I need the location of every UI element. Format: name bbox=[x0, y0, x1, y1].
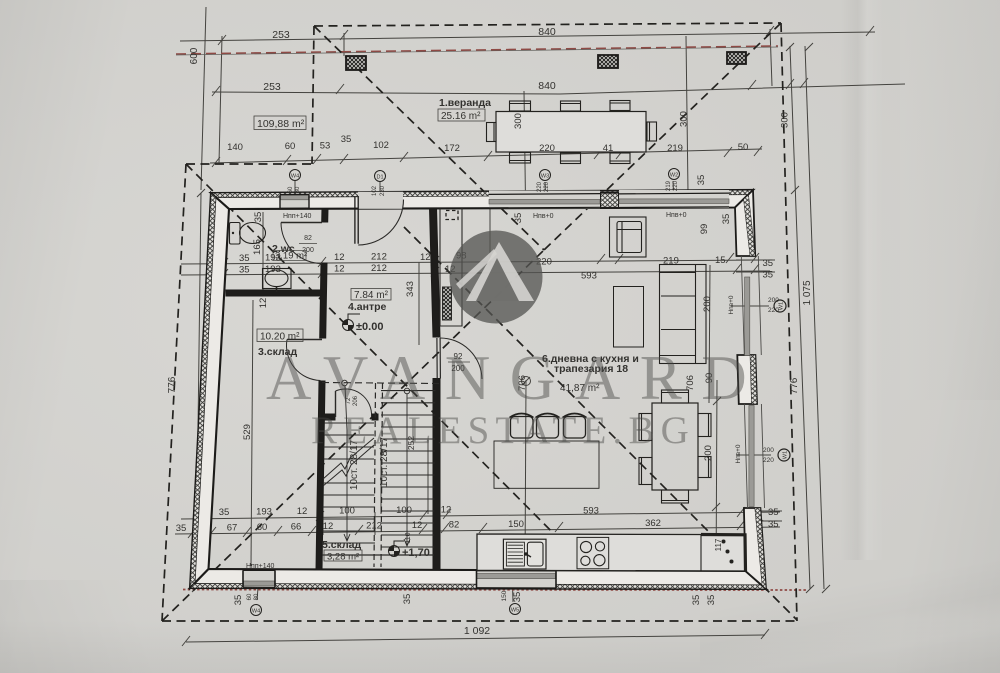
svg-text:110: 110 bbox=[405, 532, 412, 543]
svg-text:593: 593 bbox=[583, 506, 599, 517]
svg-text:35: 35 bbox=[239, 265, 250, 276]
svg-text:102: 102 bbox=[372, 185, 378, 196]
svg-text:60: 60 bbox=[285, 141, 296, 152]
svg-text:172: 172 bbox=[444, 143, 460, 154]
svg-text:300: 300 bbox=[780, 112, 791, 128]
svg-text:362: 362 bbox=[645, 518, 661, 529]
svg-text:150: 150 bbox=[501, 590, 508, 601]
svg-text:41: 41 bbox=[603, 143, 614, 154]
svg-text:3.19 m²: 3.19 m² bbox=[275, 251, 307, 262]
svg-text:+1,70: +1,70 bbox=[402, 547, 430, 559]
svg-text:219: 219 bbox=[666, 180, 672, 191]
svg-text:60: 60 bbox=[257, 522, 268, 533]
svg-text:840: 840 bbox=[538, 26, 556, 38]
svg-text:100: 100 bbox=[339, 506, 355, 517]
svg-text:35: 35 bbox=[341, 134, 352, 145]
svg-text:1 075: 1 075 bbox=[802, 280, 813, 305]
svg-text:529: 529 bbox=[242, 424, 253, 440]
svg-text:212: 212 bbox=[366, 521, 382, 532]
svg-text:W4: W4 bbox=[291, 174, 299, 180]
svg-text:50: 50 bbox=[738, 142, 749, 153]
svg-text:67: 67 bbox=[227, 523, 238, 534]
svg-text:35: 35 bbox=[176, 523, 187, 534]
svg-text:10.20 m²: 10.20 m² bbox=[260, 332, 300, 343]
svg-text:Hпп+140: Hпп+140 bbox=[283, 213, 312, 220]
svg-text:35: 35 bbox=[691, 595, 702, 606]
svg-text:Hпв+0: Hпв+0 bbox=[735, 444, 742, 463]
svg-text:4.антре: 4.антре bbox=[348, 301, 386, 313]
svg-text:82: 82 bbox=[449, 520, 460, 531]
svg-text:80: 80 bbox=[295, 186, 301, 193]
svg-text:35: 35 bbox=[402, 594, 413, 605]
svg-text:593: 593 bbox=[581, 271, 597, 282]
svg-text:W3: W3 bbox=[541, 174, 549, 180]
svg-text:35: 35 bbox=[768, 519, 779, 530]
svg-text:193: 193 bbox=[256, 507, 272, 518]
svg-text:35: 35 bbox=[219, 507, 230, 518]
svg-text:Hпв+0: Hпв+0 bbox=[728, 295, 735, 314]
svg-text:60: 60 bbox=[288, 186, 294, 193]
svg-text:220: 220 bbox=[673, 180, 679, 191]
svg-text:W1: W1 bbox=[779, 302, 785, 310]
svg-text:1 092: 1 092 bbox=[464, 625, 490, 637]
svg-text:12: 12 bbox=[334, 252, 345, 263]
svg-text:35: 35 bbox=[768, 507, 779, 518]
svg-text:Hпп+140: Hпп+140 bbox=[246, 563, 275, 570]
svg-text:193: 193 bbox=[265, 264, 281, 275]
svg-text:D1: D1 bbox=[376, 175, 383, 181]
svg-text:776: 776 bbox=[789, 377, 800, 394]
svg-text:W2: W2 bbox=[670, 173, 678, 179]
svg-text:Hпв+0: Hпв+0 bbox=[533, 213, 554, 220]
svg-text:66: 66 bbox=[291, 522, 302, 533]
svg-text:200: 200 bbox=[703, 445, 714, 461]
svg-text:140: 140 bbox=[227, 142, 243, 153]
svg-text:12: 12 bbox=[441, 505, 452, 516]
svg-text:343: 343 bbox=[405, 281, 416, 297]
svg-text:35: 35 bbox=[253, 212, 264, 223]
svg-text:12: 12 bbox=[323, 521, 334, 532]
svg-text:35: 35 bbox=[721, 214, 732, 225]
svg-text:117: 117 bbox=[714, 538, 723, 551]
svg-text:165: 165 bbox=[252, 239, 263, 255]
svg-text:35: 35 bbox=[233, 595, 244, 606]
svg-text:12: 12 bbox=[258, 298, 269, 309]
svg-text:200: 200 bbox=[702, 296, 713, 312]
svg-text:35: 35 bbox=[696, 175, 707, 186]
svg-text:220: 220 bbox=[763, 457, 774, 464]
svg-text:840: 840 bbox=[538, 80, 556, 92]
svg-text:60: 60 bbox=[247, 593, 253, 600]
svg-text:3,28 m²: 3,28 m² bbox=[327, 552, 359, 563]
svg-text:W5: W5 bbox=[511, 608, 519, 614]
svg-text:REALESTATE.BG: REALESTATE.BG bbox=[311, 409, 695, 452]
svg-text:35: 35 bbox=[512, 592, 523, 603]
svg-text:99: 99 bbox=[699, 224, 710, 235]
svg-text:AVANGARD: AVANGARD bbox=[266, 343, 766, 413]
svg-text:Hпв+0: Hпв+0 bbox=[666, 212, 687, 219]
svg-text:150: 150 bbox=[508, 519, 524, 530]
svg-text:200: 200 bbox=[763, 447, 774, 454]
svg-text:219: 219 bbox=[667, 143, 683, 154]
svg-text:220: 220 bbox=[539, 143, 555, 154]
svg-text:12: 12 bbox=[420, 252, 431, 263]
svg-text:219: 219 bbox=[663, 256, 679, 267]
svg-text:230: 230 bbox=[380, 185, 386, 196]
svg-text:12: 12 bbox=[412, 520, 423, 531]
svg-text:±0.00: ±0.00 bbox=[356, 321, 383, 333]
svg-text:W4: W4 bbox=[252, 609, 260, 615]
svg-text:12: 12 bbox=[334, 264, 345, 275]
svg-text:220: 220 bbox=[537, 181, 543, 192]
svg-text:109,88 m²: 109,88 m² bbox=[257, 118, 305, 130]
svg-text:35: 35 bbox=[513, 213, 524, 224]
svg-text:220: 220 bbox=[768, 307, 779, 314]
svg-text:776: 776 bbox=[167, 376, 178, 393]
svg-text:212: 212 bbox=[371, 252, 387, 263]
svg-text:7.84 m²: 7.84 m² bbox=[354, 290, 389, 301]
svg-text:35: 35 bbox=[706, 595, 717, 606]
svg-text:53: 53 bbox=[320, 141, 331, 152]
svg-text:300: 300 bbox=[513, 113, 524, 129]
svg-text:35: 35 bbox=[763, 258, 774, 269]
svg-text:1.веранда: 1.веранда bbox=[439, 97, 491, 109]
svg-text:82: 82 bbox=[304, 235, 312, 242]
svg-text:25.16 m²: 25.16 m² bbox=[441, 111, 481, 122]
svg-text:200: 200 bbox=[768, 297, 779, 304]
svg-text:102: 102 bbox=[373, 140, 389, 151]
svg-text:80: 80 bbox=[254, 593, 260, 600]
svg-text:35: 35 bbox=[763, 270, 774, 281]
svg-text:5.склад: 5.склад bbox=[322, 539, 361, 551]
svg-text:12: 12 bbox=[297, 506, 308, 517]
svg-text:253: 253 bbox=[272, 29, 290, 41]
svg-text:15: 15 bbox=[715, 255, 726, 266]
svg-text:100: 100 bbox=[396, 505, 412, 516]
svg-text:W1: W1 bbox=[783, 451, 789, 459]
svg-text:600: 600 bbox=[189, 47, 200, 64]
svg-text:253: 253 bbox=[263, 81, 281, 93]
svg-text:212: 212 bbox=[371, 263, 387, 274]
svg-text:220: 220 bbox=[544, 181, 550, 192]
svg-text:35: 35 bbox=[239, 253, 250, 264]
svg-text:300: 300 bbox=[679, 111, 690, 127]
